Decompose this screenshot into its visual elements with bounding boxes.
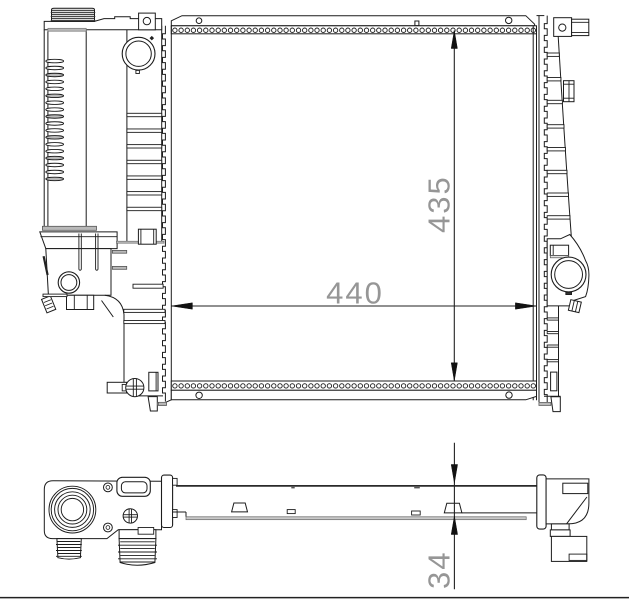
svg-text:435: 435 bbox=[422, 175, 457, 233]
svg-text:440: 440 bbox=[326, 276, 384, 311]
svg-text:34: 34 bbox=[422, 551, 457, 589]
